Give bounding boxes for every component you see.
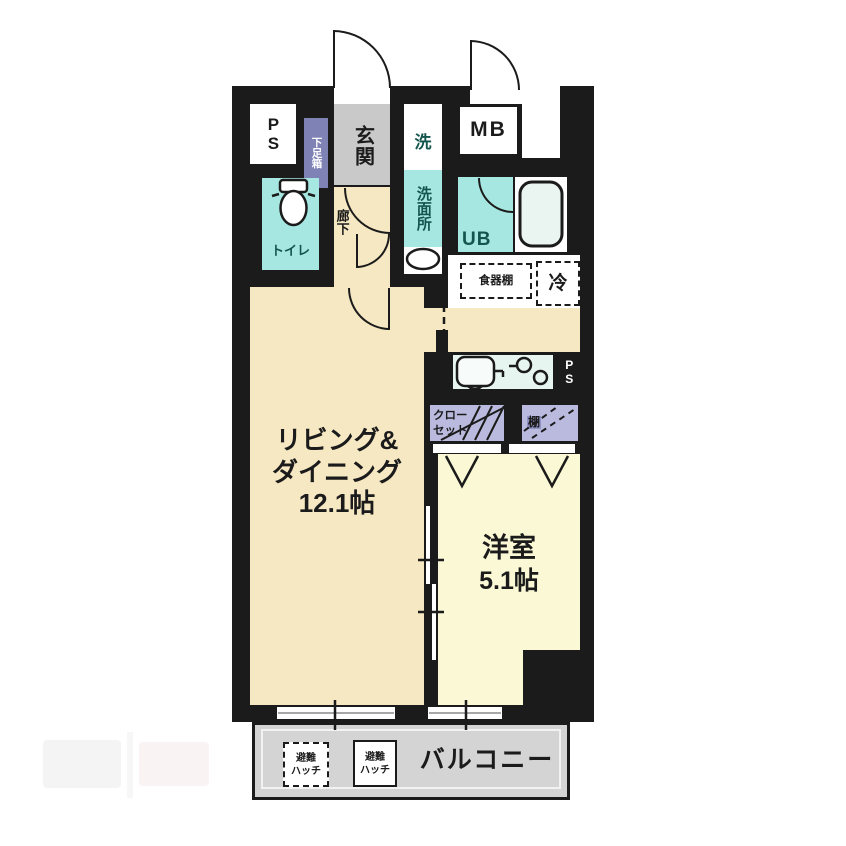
kitchen-floor (448, 308, 580, 352)
living-dining-label: リビング& ダイニング 12.1帖 (250, 425, 424, 520)
kitchen-counter (450, 352, 556, 392)
mb-door-swing (470, 40, 520, 90)
evacuation-hatch-solid-label: 避難 ハッチ (360, 751, 390, 777)
evacuation-hatch-dashed-label: 避難 ハッチ (291, 752, 321, 778)
hallway-label: 廊下 (335, 209, 349, 235)
shelf-door-track (508, 443, 576, 454)
entrance-label: 玄関 (352, 125, 373, 167)
faint-watermark (35, 726, 215, 806)
shelf: 棚 (520, 403, 580, 443)
balcony: 避難 ハッチ 避難 ハッチ バルコニー (252, 722, 570, 800)
refrigerator-label: 冷 (548, 274, 567, 294)
shelf-label: 棚 (527, 416, 541, 429)
meter-box: MB (457, 104, 520, 157)
entrance-door-gap (334, 86, 390, 104)
evacuation-hatch-dashed: 避難 ハッチ (283, 742, 329, 787)
laundry-label: 洗 (415, 134, 432, 152)
washroom-label: 洗面所 (415, 186, 431, 231)
living-dining-room: リビング& ダイニング 12.1帖 (250, 287, 424, 705)
entrance-door-swing (333, 30, 391, 88)
balcony-label: バルコニー (407, 747, 567, 773)
watermark-block-right (139, 742, 209, 786)
western-room: 洋室 5.1帖 (438, 454, 580, 650)
kitchen-wall-corner (436, 330, 448, 352)
unit-bath-label: UB (462, 230, 491, 250)
balcony-window-western (428, 707, 502, 719)
western-room-label: 洋室 5.1帖 (438, 532, 580, 597)
pipe-shaft-kitchen-label: PS (563, 358, 576, 386)
closet: クロー セット (428, 403, 506, 443)
cupboard: 食器棚 (460, 263, 532, 299)
laundry-space: 洗 (404, 104, 442, 170)
sliding-door-panel-1 (425, 505, 431, 585)
washroom: 洗面所 (404, 170, 442, 247)
bathtub-compartment (515, 177, 567, 252)
refrigerator-space: 冷 (536, 261, 580, 306)
pipe-shaft-top-label: PS (264, 115, 282, 153)
western-room-lower (438, 650, 523, 705)
shoe-box-label: 下足箱 (310, 137, 321, 169)
sliding-door-panel-2 (431, 583, 437, 661)
closet-label: クロー セット (433, 409, 468, 439)
entrance-room: 玄関 (334, 104, 390, 187)
entrance-step-line (334, 185, 390, 187)
evacuation-hatch-solid: 避難 ハッチ (353, 740, 397, 787)
floor-plan: PS 下足箱 玄関 廊下 洗 洗面所 MB UB トイレ 食器棚 冷 PS (0, 0, 846, 846)
watermark-block-left (43, 740, 121, 788)
toilet-label: トイレ (271, 244, 310, 258)
balcony-window-living (277, 707, 395, 719)
pipe-shaft-kitchen: PS (558, 352, 580, 392)
watermark-divider (127, 732, 133, 798)
meter-box-label: MB (470, 119, 507, 141)
mb-alcove (522, 104, 560, 158)
toilet-room: トイレ (262, 178, 319, 270)
washer-pan-area (404, 247, 442, 274)
closet-door-track (432, 443, 502, 454)
pipe-shaft-top: PS (250, 104, 296, 164)
cupboard-label: 食器棚 (479, 275, 514, 287)
